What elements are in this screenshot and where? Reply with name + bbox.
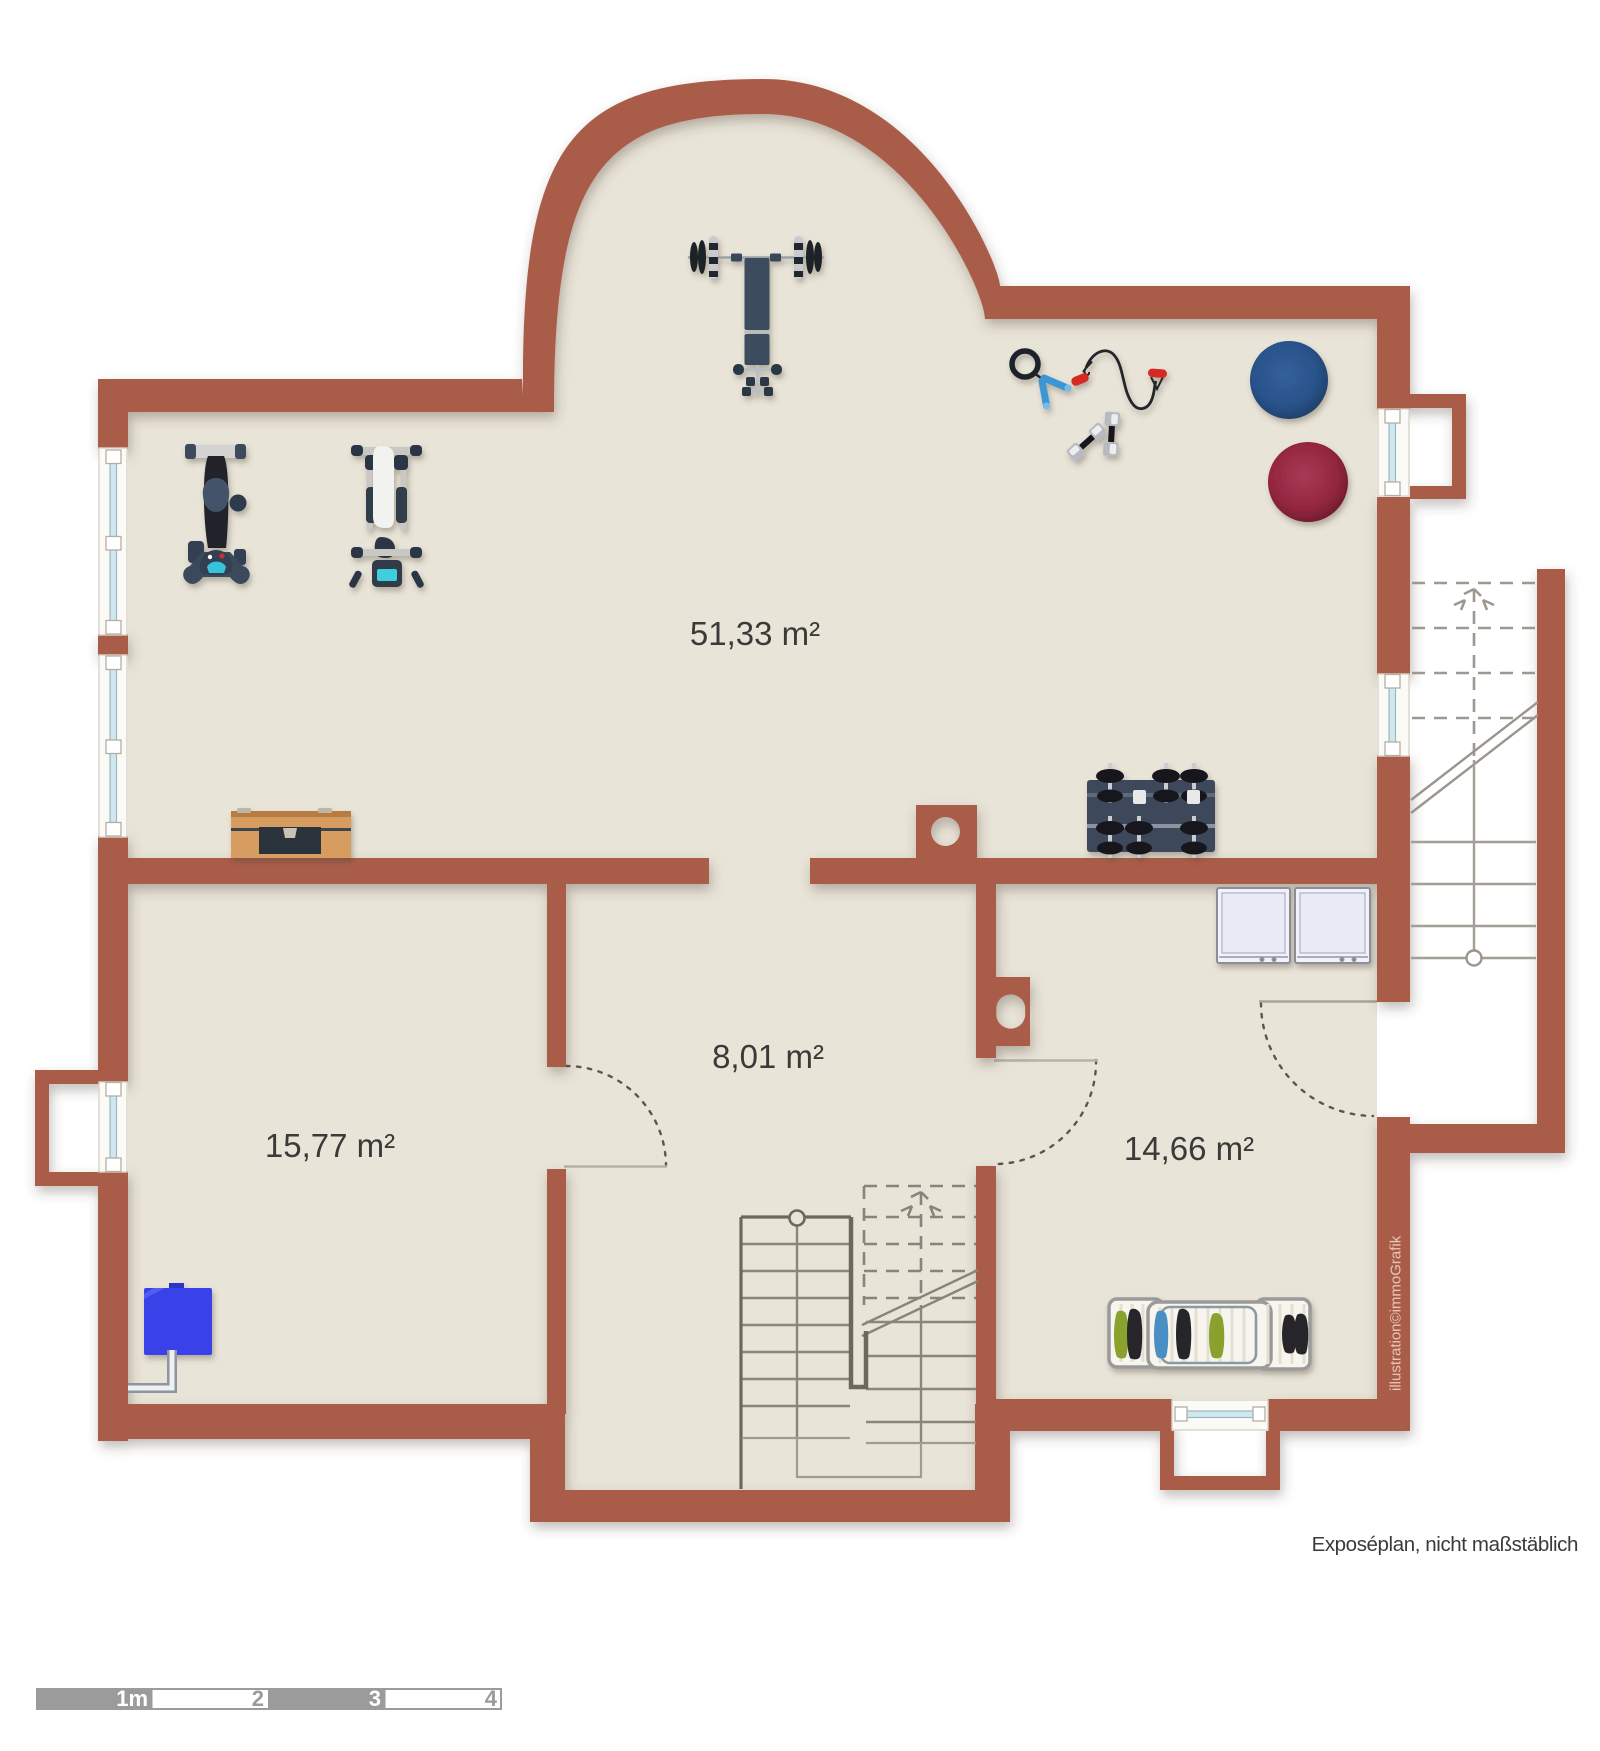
svg-text:14,66 m²: 14,66 m² xyxy=(1124,1130,1254,1167)
svg-text:illustration©immoGrafik: illustration©immoGrafik xyxy=(1388,1235,1405,1391)
svg-text:51,33 m²: 51,33 m² xyxy=(690,615,820,652)
svg-text:2: 2 xyxy=(252,1686,264,1711)
svg-text:8,01 m²: 8,01 m² xyxy=(712,1038,824,1075)
svg-text:Exposéplan, nicht maßstäblich: Exposéplan, nicht maßstäblich xyxy=(1312,1533,1578,1556)
svg-text:4: 4 xyxy=(485,1686,498,1711)
svg-text:3: 3 xyxy=(369,1686,381,1711)
svg-text:15,77 m²: 15,77 m² xyxy=(265,1127,395,1164)
svg-text:1m: 1m xyxy=(116,1686,148,1711)
